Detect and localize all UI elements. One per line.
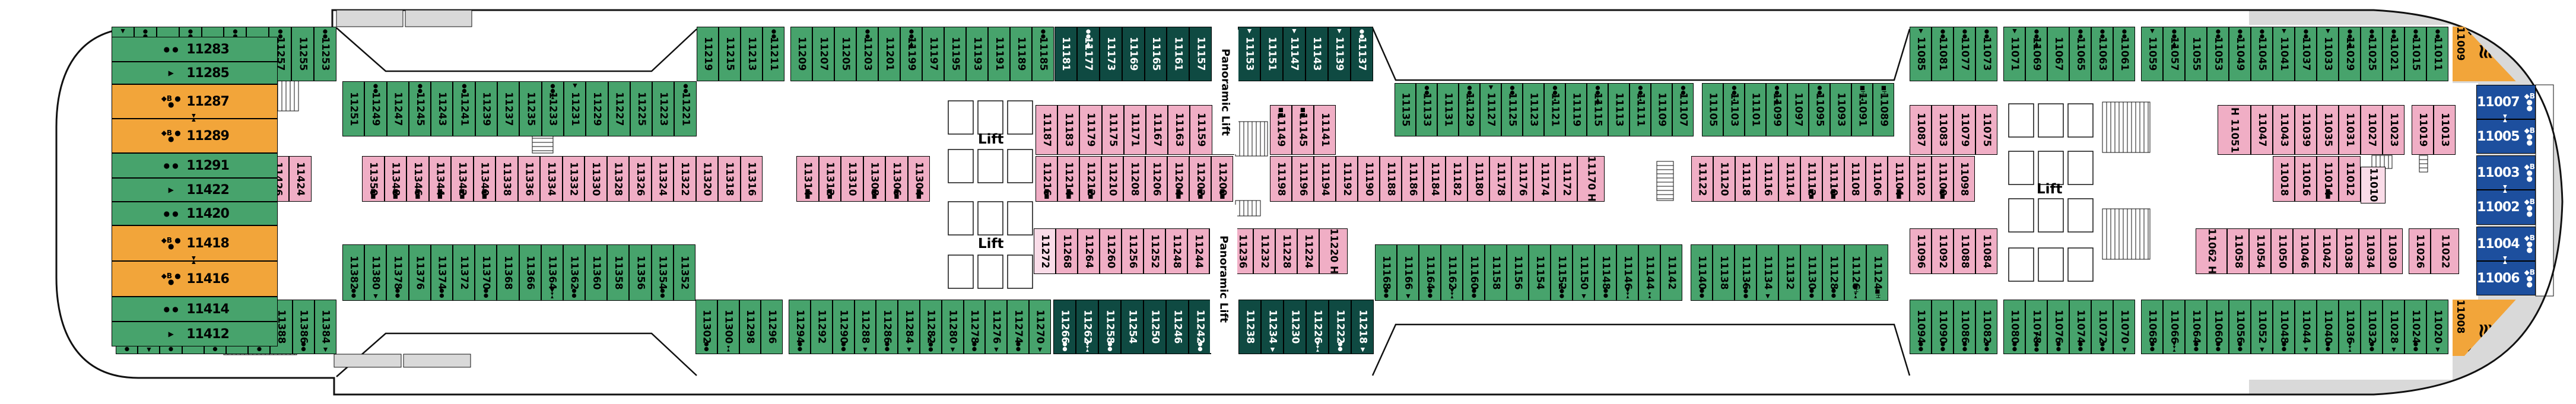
cabin-11035[interactable]: 11035 (2317, 105, 2339, 155)
cabin-11163[interactable]: 11163 (1168, 105, 1190, 155)
cabin-11048[interactable]: 11048●● (2273, 300, 2295, 354)
cabin-11306[interactable]: 11306■■ (885, 156, 908, 202)
cabin-11206[interactable]: 11206 (1145, 156, 1167, 202)
cabin-11211[interactable]: 11211●● (763, 27, 784, 81)
cabin-11002[interactable]: 11002◆B ● ● (2476, 190, 2536, 225)
cabin-11079[interactable]: 11079 (1954, 105, 1975, 155)
cabin-11057[interactable]: 11057●●▸◂▶ (2163, 27, 2185, 81)
cabin-11366[interactable]: 11366 (519, 244, 541, 301)
cabin-11320[interactable]: 11320 (696, 156, 719, 202)
cabin-11077[interactable]: 11077●● (1954, 27, 1975, 81)
cabin-11264[interactable]: 11264 (1078, 228, 1100, 274)
cabin-11012[interactable]: 11012 (2339, 156, 2361, 202)
cabin-11159[interactable]: 11159 (1190, 105, 1212, 155)
cabin-11184[interactable]: 11184 (1424, 156, 1446, 202)
cabin-11230[interactable]: 11230 (1284, 300, 1306, 354)
cabin-11243[interactable]: 11243 (431, 81, 453, 136)
cabin-11286[interactable]: 11286●● (876, 300, 898, 354)
cabin-11213[interactable]: 11213 (741, 27, 763, 81)
cabin-11119[interactable]: 11119 (1565, 83, 1587, 136)
cabin-11294[interactable]: 11294●● (789, 300, 811, 354)
cabin-11065[interactable]: 11065●● (2069, 27, 2091, 81)
cabin-11005[interactable]: 11005◆B ● ● (2476, 119, 2536, 154)
cabin-11239[interactable]: 11239 (475, 81, 497, 136)
cabin-11112[interactable]: 11112■■ (1800, 156, 1822, 202)
cabin-11039[interactable]: 11039 (2295, 105, 2317, 155)
cabin-11076[interactable]: 11076●● (2047, 300, 2069, 354)
cabin-11138[interactable]: 11138 (1713, 244, 1735, 301)
cabin-11231[interactable]: 11231▶ (564, 81, 586, 136)
cabin-11154[interactable]: 11154 (1529, 244, 1551, 301)
cabin-11144[interactable]: 11144▸◂ (1638, 244, 1660, 301)
cabin-11029[interactable]: 11029●●▸◂▶ (2339, 27, 2361, 81)
cabin-11075[interactable]: 11075 (1975, 105, 1997, 155)
cabin-11101[interactable]: 11101 (1745, 83, 1766, 136)
cabin-11131[interactable]: 11131 (1437, 83, 1459, 136)
cabin-11139[interactable]: 11139▶ (1328, 27, 1351, 81)
cabin-11223[interactable]: 11223 (652, 81, 674, 136)
cabin-11234[interactable]: 11234▶ (1261, 300, 1284, 354)
cabin-11100[interactable]: 11100■■ (1932, 156, 1954, 202)
cabin-11156[interactable]: 11156 (1507, 244, 1529, 301)
cabin-11232[interactable]: 11232 (1253, 228, 1275, 274)
cabin-11272[interactable]: 11272 (1034, 228, 1056, 274)
cabin-11288[interactable]: 11288▶ (855, 300, 876, 354)
cabin-11182[interactable]: 11182 (1446, 156, 1468, 202)
cabin-11210[interactable]: 11210 (1101, 156, 1123, 202)
cabin-11302[interactable]: 11302●● (695, 300, 717, 354)
cabin-11014[interactable]: 11014■■ (2317, 156, 2339, 202)
cabin-11203[interactable]: 11203●● (856, 27, 878, 81)
cabin-11194[interactable]: 11194 (1314, 156, 1336, 202)
cabin-11168[interactable]: 11168●● (1375, 244, 1397, 301)
cabin-11266[interactable]: 11266●● (1053, 300, 1076, 354)
cabin-11161[interactable]: 11161 (1167, 27, 1189, 81)
cabin-11082[interactable]: 11082●● (1975, 300, 1997, 354)
cabin-11103[interactable]: 11103●●▸◂ (1723, 83, 1745, 136)
cabin-11195[interactable]: 11195 (944, 27, 966, 81)
cabin-11081[interactable]: 11081●● (1932, 27, 1954, 81)
cabin-11102[interactable]: 11102 (1910, 156, 1932, 202)
cabin-11179[interactable]: 11179 (1079, 105, 1101, 155)
cabin-11135[interactable]: 11135 (1395, 83, 1416, 136)
cabin-11356[interactable]: 11356 (629, 244, 651, 301)
cabin-11024[interactable]: 11024●● (2405, 300, 2426, 354)
cabin-11330[interactable]: 11330 (585, 156, 607, 202)
cabin-11222[interactable]: 11222●● (1329, 300, 1351, 354)
cabin-11111[interactable]: 11111●●▸◂ (1630, 83, 1651, 136)
cabin-11087[interactable]: 11087 (1910, 105, 1932, 155)
cabin-11199[interactable]: 11199●●▸◂▶ (900, 27, 922, 81)
cabin-11248[interactable]: 11248 (1165, 228, 1187, 274)
cabin-11372[interactable]: 11372 (453, 244, 475, 301)
cabin-11196[interactable]: 11196 (1292, 156, 1314, 202)
cabin-11258[interactable]: 11258●● (1098, 300, 1121, 354)
cabin-11218[interactable]: 11218▶ (1351, 300, 1374, 354)
cabin-11044[interactable]: 11044▶ (2295, 300, 2317, 354)
cabin-11140[interactable]: 11140●● (1691, 244, 1713, 301)
cabin-11018[interactable]: 11018 (2273, 156, 2295, 202)
cabin-11028[interactable]: 11028▶ (2383, 300, 2405, 354)
cabin-11031[interactable]: 11031 (2339, 105, 2361, 155)
cabin-11043[interactable]: 11043 (2273, 105, 2295, 155)
cabin-11086[interactable]: 11086●● (1954, 300, 1975, 354)
cabin-11424[interactable]: 11424 (289, 156, 311, 202)
cabin-11097[interactable]: 11097 (1787, 83, 1809, 136)
cabin-11094[interactable]: 11094●● (1910, 300, 1932, 354)
cabin-11038[interactable]: 11038 (2337, 228, 2359, 274)
cabin-11060[interactable]: 11060●● (2207, 300, 2229, 354)
cabin-11262[interactable]: 11262▶▸◂ (1076, 300, 1098, 354)
cabin-11350[interactable]: 11350■■ (362, 156, 385, 202)
cabin-11336[interactable]: 11336 (518, 156, 541, 202)
cabin-11233[interactable]: 11233●●▸◂ (542, 81, 564, 136)
cabin-11133[interactable]: 11133●● (1416, 83, 1437, 136)
cabin-11316[interactable]: 11316 (741, 156, 763, 202)
cabin-11342[interactable]: 11342■■ (451, 156, 474, 202)
cabin-11011[interactable]: 11011●● (2426, 27, 2448, 81)
cabin-11188[interactable]: 11188 (1380, 156, 1402, 202)
cabin-11344[interactable]: 11344■■ (429, 156, 452, 202)
cabin-11338[interactable]: 11338 (495, 156, 518, 202)
cabin-11256[interactable]: 11256 (1122, 228, 1144, 274)
cabin-11067[interactable]: 11067 (2047, 27, 2069, 81)
cabin-11358[interactable]: 11358 (607, 244, 629, 301)
cabin-11422[interactable]: ▶11422 (112, 178, 278, 202)
cabin-11020[interactable]: 11020▶ (2426, 300, 2448, 354)
cabin-11098[interactable]: 11098 (1954, 156, 1975, 202)
cabin-11026[interactable]: 11026 (2409, 228, 2431, 274)
cabin-11106[interactable]: 11106 (1866, 156, 1888, 202)
cabin-11010[interactable]: 11010 (2361, 167, 2386, 203)
cabin-11137[interactable]: 11137●● (1351, 27, 1373, 81)
cabin-11158[interactable]: 11158 (1485, 244, 1507, 301)
cabin-11278[interactable]: 11278●● (964, 300, 986, 354)
cabin-11189[interactable]: 11189 (1010, 27, 1032, 81)
cabin-11242[interactable]: 11242●● (1189, 300, 1211, 354)
cabin-11054[interactable]: 11054 (2249, 228, 2271, 274)
cabin-11348[interactable]: 11348■■ (385, 156, 407, 202)
cabin-11246[interactable]: 11246 (1166, 300, 1189, 354)
cabin-11226[interactable]: 11226▶▸◂ (1306, 300, 1329, 354)
cabin-11380[interactable]: 11380▶ (364, 244, 386, 301)
cabin-11312[interactable]: 11312■■ (819, 156, 841, 202)
cabin-11171[interactable]: 11171 (1124, 105, 1146, 155)
cabin-11253[interactable]: 11253●● (314, 27, 336, 81)
cabin-11088[interactable]: 11088 (1954, 228, 1975, 274)
cabin-11032[interactable]: 11032●● (2361, 300, 2383, 354)
cabin-11274[interactable]: 11274●● (1007, 300, 1029, 354)
cabin-11318[interactable]: 11318 (718, 156, 741, 202)
cabin-11178[interactable]: 11178 (1489, 156, 1511, 202)
cabin-11322[interactable]: 11322 (674, 156, 696, 202)
cabin-11070[interactable]: 11070▶ (2113, 300, 2135, 354)
cabin-11340[interactable]: 11340■■ (474, 156, 496, 202)
cabin-11021[interactable]: 11021●● (2383, 27, 2405, 81)
cabin-11128[interactable]: 11128●● (1822, 244, 1844, 301)
cabin-11072[interactable]: 11072●● (2091, 300, 2113, 354)
cabin-11130[interactable]: 11130●● (1800, 244, 1822, 301)
cabin-11186[interactable]: 11186 (1402, 156, 1424, 202)
cabin-11360[interactable]: 11360 (585, 244, 607, 301)
cabin-11220H[interactable]: 11220 H (1319, 228, 1348, 274)
cabin-11334[interactable]: 11334 (540, 156, 563, 202)
cabin-11326[interactable]: 11326 (629, 156, 652, 202)
cabin-11283[interactable]: ● ●11283 (112, 37, 278, 62)
cabin-11412[interactable]: ▶11412 (112, 322, 278, 346)
cabin-11157[interactable]: 11157 (1189, 27, 1212, 81)
cabin-11183[interactable]: 11183 (1057, 105, 1079, 155)
cabin-11177[interactable]: 11177●●▸◂▶ (1077, 27, 1100, 81)
cabin-11414[interactable]: ● ●11414 (112, 297, 278, 322)
cabin-11080[interactable]: 11080●● (2003, 300, 2025, 354)
cabin-11052[interactable]: 11052▶ (2251, 300, 2273, 354)
cabin-11105[interactable]: 11105 (1702, 83, 1723, 136)
cabin-11096[interactable]: 11096 (1910, 228, 1932, 274)
cabin-11280[interactable]: 11280▶ (942, 300, 964, 354)
cabin-11041[interactable]: 11041▶ (2273, 27, 2295, 81)
cabin-11033[interactable]: 11033▶ (2317, 27, 2339, 81)
cabin-11181[interactable]: 11181 (1054, 27, 1077, 81)
cabin-11126[interactable]: 11126■H▸◂ (1844, 244, 1866, 301)
cabin-11284[interactable]: 11284▶ (898, 300, 920, 354)
cabin-11069[interactable]: 11069●●▸◂▶ (2025, 27, 2047, 81)
cabin-11270[interactable]: 11270▶ (1029, 300, 1051, 354)
cabin-11215[interactable]: 11215 (719, 27, 741, 81)
cabin-11176[interactable]: 11176 (1511, 156, 1533, 202)
cabin-11244[interactable]: 11244 (1187, 228, 1209, 274)
cabin-11016[interactable]: 11016 (2295, 156, 2317, 202)
cabin-11150[interactable]: 11150▶ (1573, 244, 1594, 301)
cabin-11084[interactable]: 11084 (1975, 228, 1997, 274)
cabin-11310[interactable]: 11310 (841, 156, 863, 202)
cabin-11050[interactable]: 11050 (2271, 228, 2293, 274)
cabin-11118[interactable]: 11118 (1735, 156, 1757, 202)
cabin-11250[interactable]: 11250 (1144, 300, 1166, 354)
cabin-11047[interactable]: 11047 (2251, 105, 2273, 155)
cabin-11136[interactable]: 11136▸◂●● (1735, 244, 1756, 301)
cabin-11314[interactable]: 11314■■ (796, 156, 819, 202)
cabin-11235[interactable]: 11235 (519, 81, 541, 136)
cabin-11192[interactable]: 11192 (1336, 156, 1358, 202)
cabin-11062H[interactable]: 11062 H (2196, 228, 2227, 274)
cabin-11251[interactable]: 11251 (342, 81, 364, 136)
cabin-11221[interactable]: 11221●● (674, 81, 696, 136)
cabin-11162[interactable]: 11162▶▸◂ (1441, 244, 1463, 301)
cabin-11124[interactable]: 11124■H (1866, 244, 1888, 301)
cabin-11045[interactable]: 11045●● (2251, 27, 2273, 81)
cabin-11053[interactable]: 11053●● (2207, 27, 2229, 81)
cabin-11125[interactable]: 11125●● (1501, 83, 1523, 136)
cabin-11238[interactable]: 11238 (1238, 300, 1261, 354)
cabin-11370[interactable]: 11370●● (475, 244, 497, 301)
cabin-11143[interactable]: 11143 (1306, 27, 1328, 81)
cabin-11068[interactable]: 11068●● (2141, 300, 2163, 354)
cabin-11328[interactable]: 11328 (607, 156, 630, 202)
cabin-11332[interactable]: 11332 (563, 156, 585, 202)
cabin-11197[interactable]: 11197 (922, 27, 944, 81)
cabin-11129[interactable]: 11129●●▸◂ (1459, 83, 1480, 136)
cabin-11169[interactable]: 11169 (1122, 27, 1145, 81)
cabin-11227[interactable]: 11227 (608, 81, 630, 136)
cabin-11116[interactable]: 11116 (1756, 156, 1778, 202)
cabin-11061[interactable]: 11061●● (2113, 27, 2135, 81)
cabin-11185[interactable]: 11185●● (1032, 27, 1054, 81)
cabin-11219[interactable]: 11219 (697, 27, 719, 81)
cabin-11208[interactable]: 11208 (1123, 156, 1145, 202)
cabin-11378[interactable]: 11378●● (386, 244, 408, 301)
cabin-11121[interactable]: 11121●●▸◂ (1544, 83, 1565, 136)
cabin-11368[interactable]: 11368 (497, 244, 519, 301)
cabin-11175[interactable]: 11175 (1102, 105, 1124, 155)
cabin-11089[interactable]: 11089■H (1873, 83, 1894, 136)
cabin-11145[interactable]: 11145■■ (1292, 105, 1314, 155)
cabin-11420[interactable]: ● ●11420 (112, 202, 278, 225)
cabin-11055[interactable]: 11055 (2185, 27, 2207, 81)
cabin-11160[interactable]: 11160●● (1463, 244, 1485, 301)
cabin-11249[interactable]: 11249●● (364, 81, 386, 136)
cabin-11207[interactable]: 11207 (812, 27, 834, 81)
cabin-11123[interactable]: 11123 (1523, 83, 1544, 136)
cabin-11023[interactable]: 11023 (2383, 105, 2405, 155)
cabin-11298[interactable]: 11298 (739, 300, 761, 354)
cabin-11085[interactable]: 11085▶ (1910, 27, 1932, 81)
cabin-11364[interactable]: 11364▶▸◂ (541, 244, 563, 301)
cabin-11015[interactable]: 11015●● (2405, 27, 2426, 81)
cabin-11092[interactable]: 11092 (1932, 228, 1954, 274)
cabin-11110[interactable]: 11110■■ (1822, 156, 1844, 202)
cabin-11229[interactable]: 11229 (586, 81, 608, 136)
cabin-11237[interactable]: 11237 (497, 81, 519, 136)
cabin-11282[interactable]: 11282▸◂●● (920, 300, 942, 354)
cabin-11127[interactable]: 11127▶ (1480, 83, 1501, 136)
cabin-11166[interactable]: 11166▶ (1397, 244, 1419, 301)
cabin-11291[interactable]: ● ●11291 (112, 153, 278, 178)
cabin-11148[interactable]: 11148●● (1594, 244, 1616, 301)
cabin-11132[interactable]: 11132 (1778, 244, 1800, 301)
cabin-11122[interactable]: 11122 (1691, 156, 1713, 202)
cabin-11147[interactable]: 11147▶ (1283, 27, 1306, 81)
cabin-11040[interactable]: 11040●● (2317, 300, 2339, 354)
cabin-11027[interactable]: 11027 (2361, 105, 2383, 155)
cabin-11073[interactable]: 11073●● (1975, 27, 1997, 81)
cabin-11099[interactable]: 11099●●▸◂▶ (1766, 83, 1787, 136)
cabin-11042[interactable]: 11042 (2315, 228, 2337, 274)
cabin-11290[interactable]: 11290●● (833, 300, 855, 354)
cabin-11090[interactable]: 11090●● (1932, 300, 1954, 354)
cabin-11142[interactable]: 11142 (1660, 244, 1682, 301)
cabin-11268[interactable]: 11268 (1056, 228, 1078, 274)
cabin-11019[interactable]: 11019 (2412, 105, 2434, 155)
cabin-11296[interactable]: 11296 (761, 300, 783, 354)
cabin-11255[interactable]: 11255 (291, 27, 314, 81)
cabin-11006[interactable]: 11006◆B ● ● (2476, 261, 2536, 295)
cabin-11063[interactable]: 11063●● (2091, 27, 2113, 81)
cabin-11034[interactable]: 11034 (2359, 228, 2381, 274)
cabin-11030[interactable]: 11030 (2381, 228, 2403, 274)
cabin-11187[interactable]: 11187 (1036, 105, 1057, 155)
cabin-11074[interactable]: 11074●● (2069, 300, 2091, 354)
cabin-11200[interactable]: 11200■■ (1211, 156, 1233, 202)
cabin-11109[interactable]: 11109 (1651, 83, 1672, 136)
cabin-11071[interactable]: 11071▶ (2003, 27, 2025, 81)
cabin-11190[interactable]: 11190 (1358, 156, 1380, 202)
cabin-11173[interactable]: 11173 (1100, 27, 1122, 81)
cabin-11153[interactable]: 11153▶ (1238, 27, 1260, 81)
cabin-11386[interactable]: 11386●● (293, 300, 315, 354)
cabin-11164[interactable]: 11164●● (1419, 244, 1441, 301)
cabin-11324[interactable]: 11324 (652, 156, 674, 202)
cabin-11202[interactable]: 11202■■ (1189, 156, 1211, 202)
cabin-11205[interactable]: 11205 (834, 27, 856, 81)
cabin-11289[interactable]: ◆B ● ●11289 (112, 119, 278, 153)
cabin-11059[interactable]: 11059▶ (2141, 27, 2163, 81)
cabin-11245[interactable]: 11245●● (409, 81, 431, 136)
cabin-11141[interactable]: 11141 (1314, 105, 1336, 155)
cabin-11224[interactable]: 11224 (1297, 228, 1319, 274)
cabin-11037[interactable]: 11037●● (2295, 27, 2317, 81)
cabin-11382[interactable]: 11382●● (342, 244, 364, 301)
cabin-11134[interactable]: 11134▶ (1756, 244, 1778, 301)
cabin-11209[interactable]: 11209 (790, 27, 812, 81)
cabin-11170H[interactable]: 11170 H (1577, 156, 1605, 202)
cabin-11214[interactable]: 11214■■ (1057, 156, 1079, 202)
cabin-11252[interactable]: 11252 (1144, 228, 1165, 274)
cabin-H11051[interactable]: H 11051 (2218, 105, 2251, 155)
cabin-11149[interactable]: 11149■■ (1270, 105, 1292, 155)
cabin-11013[interactable]: 11013 (2434, 105, 2456, 155)
cabin-11204[interactable]: 11204■■ (1167, 156, 1189, 202)
cabin-11260[interactable]: 11260 (1100, 228, 1122, 274)
cabin-11104[interactable]: 11104■■ (1888, 156, 1910, 202)
cabin-11049[interactable]: 11049●● (2229, 27, 2251, 81)
cabin-11025[interactable]: 11025●● (2361, 27, 2383, 81)
cabin-11374[interactable]: 11374●● (431, 244, 453, 301)
cabin-11056[interactable]: 11056●● (2229, 300, 2251, 354)
cabin-11064[interactable]: 11064●● (2185, 300, 2207, 354)
cabin-11247[interactable]: 11247 (387, 81, 409, 136)
cabin-11354[interactable]: 11354●● (652, 244, 674, 301)
cabin-11212[interactable]: 11212■■ (1079, 156, 1101, 202)
cabin-11066[interactable]: 11066▶▸◂ (2163, 300, 2185, 354)
cabin-11300[interactable]: 11300▸◂ (717, 300, 739, 354)
cabin-11225[interactable]: 11225 (630, 81, 652, 136)
cabin-11093[interactable]: 11093 (1830, 83, 1851, 136)
cabin-11036[interactable]: 11036▶▸◂ (2339, 300, 2361, 354)
cabin-11292[interactable]: 11292 (811, 300, 833, 354)
cabin-11201[interactable]: 11201 (878, 27, 900, 81)
cabin-11362[interactable]: 11362●● (563, 244, 585, 301)
cabin-11376[interactable]: 11376 (409, 244, 431, 301)
cabin-11216[interactable]: 11216■■ (1036, 156, 1057, 202)
cabin-11241[interactable]: 11241●● (453, 81, 475, 136)
cabin-11108[interactable]: 11108 (1844, 156, 1866, 202)
cabin-11198[interactable]: 11198 (1270, 156, 1292, 202)
cabin-11152[interactable]: 11152▸◂●● (1551, 244, 1573, 301)
cabin-11285[interactable]: ▶11285 (112, 62, 278, 84)
cabin-11165[interactable]: 11165 (1145, 27, 1167, 81)
cabin-11078[interactable]: 11078▶▸◂●● (2025, 300, 2047, 354)
cabin-11115[interactable]: 11115●●▸◂▶ (1587, 83, 1608, 136)
cabin-11058[interactable]: 11058 (2227, 228, 2249, 274)
cabin-11120[interactable]: 11120 (1713, 156, 1735, 202)
cabin-11146[interactable]: 11146▶▸◂ (1616, 244, 1638, 301)
cabin-11172[interactable]: 11172 (1555, 156, 1577, 202)
cabin-11228[interactable]: 11228 (1275, 228, 1297, 274)
cabin-11167[interactable]: 11167 (1146, 105, 1168, 155)
cabin-11352[interactable]: 11352 (674, 244, 695, 301)
cabin-11174[interactable]: 11174 (1533, 156, 1555, 202)
